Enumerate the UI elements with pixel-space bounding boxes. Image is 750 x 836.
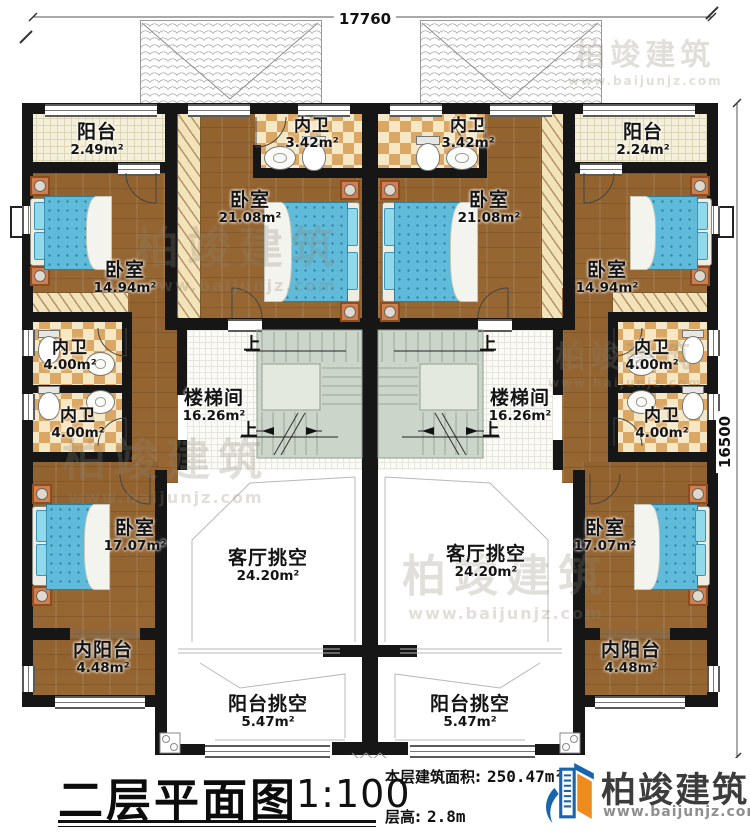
room-label-master-right: 卧室21.08m² (458, 190, 521, 226)
door-arc (256, 117, 286, 147)
nightstand (690, 176, 710, 196)
room-label-bedroom1-right: 卧室14.94m² (576, 260, 639, 296)
room-label-balcony-left: 阳台2.49m² (70, 122, 123, 158)
nightstand (380, 180, 400, 200)
floor-height-row: 层高: 2.8m (385, 806, 466, 827)
pillow (384, 252, 395, 290)
pillow (34, 232, 45, 260)
pillow (695, 544, 706, 576)
nightstand (340, 302, 360, 322)
room-label-living-void-left: 客厅挑空24.20m² (228, 548, 308, 584)
nightstand (30, 176, 50, 196)
room-label-bedroom2-left: 卧室17.07m² (104, 518, 167, 554)
room-label-bedroom2-right: 卧室17.07m² (574, 518, 637, 554)
room-label-balcony-void-right: 阳台挑空5.47m² (430, 694, 510, 730)
brand-logo-icon (540, 760, 598, 826)
room-label-bath1-left: 内卫4.00m² (43, 339, 96, 373)
bed-blanket (634, 504, 660, 590)
toilet (682, 336, 704, 364)
stairs-up-label: 上 (244, 330, 261, 355)
pillow (695, 510, 706, 542)
room-label-bath2-left: 内卫4.00m² (51, 407, 104, 441)
dimension-right: 16500 (716, 411, 734, 473)
title-block: 二层平面图 1:100 本层建筑面积: 250.47m² 层高: 2.8m 柏竣… (0, 758, 750, 836)
stairs-up-label: 上 (480, 330, 497, 355)
floor-plan: 柏竣建筑 www.baijunjz.com 柏竣建筑 www.baijunjz.… (0, 0, 750, 836)
stairs-up-label: 上 (483, 416, 500, 441)
floor-area-row: 本层建筑面积: 250.47m² (385, 766, 564, 787)
nightstand (688, 484, 708, 504)
room-label-balcony-void-left: 阳台挑空5.47m² (228, 694, 308, 730)
pillow (697, 232, 708, 260)
room-label-bath-top-left: 内卫3.42m² (285, 117, 338, 151)
pillow (384, 208, 395, 246)
nightstand (32, 484, 52, 504)
stairs-up-label: 上 (241, 416, 258, 441)
room-label-living-void-right: 客厅挑空24.20m² (446, 544, 526, 580)
room-label-bath-top-right: 内卫3.42m² (441, 117, 494, 151)
room-label-bath2-right: 内卫4.00m² (635, 407, 688, 441)
toilet (416, 143, 440, 171)
brand-url: www.baijunjz.com (603, 804, 750, 820)
pillow (36, 510, 47, 542)
pillow (697, 202, 708, 230)
room-label-inner-balcony-right: 内阳台4.48m² (601, 640, 661, 676)
dimension-top: 17760 (334, 10, 396, 28)
room-label-bedroom1-left: 卧室14.94m² (94, 260, 157, 296)
room-label-master-left: 卧室21.08m² (219, 190, 282, 226)
room-label-bath1-right: 内卫4.00m² (625, 339, 678, 373)
pillow (34, 202, 45, 230)
room-label-stair-left: 楼梯间16.26m² (183, 388, 246, 424)
pillow (347, 252, 358, 290)
nightstand (340, 180, 360, 200)
pillow (36, 544, 47, 576)
room-label-balcony-right: 阳台2.24m² (616, 122, 669, 158)
pillow (347, 208, 358, 246)
title-underline-thin (58, 826, 376, 827)
nightstand (380, 302, 400, 322)
room-label-inner-balcony-left: 内阳台4.48m² (73, 640, 133, 676)
title-underline (58, 820, 376, 823)
